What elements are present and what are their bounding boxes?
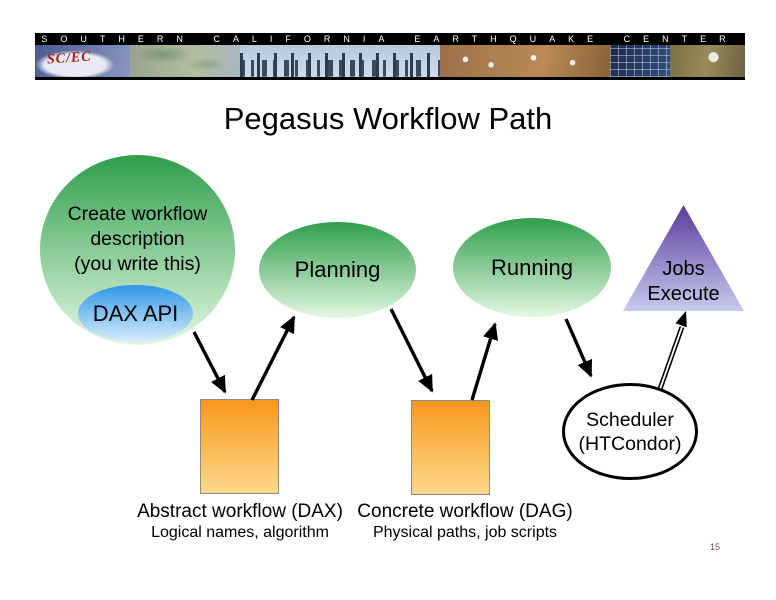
node-abstract-workflow-box [200,399,279,494]
caption-concrete-workflow: Concrete workflow (DAG) Physical paths, … [343,500,587,543]
banner-title-bar: SOUTHERN CALIFORNIA EARTHQUAKE CENTER [35,33,745,45]
banner-bottom-rule [35,77,745,80]
node-jobs-execute: Jobs Execute [623,205,744,311]
arrow-running-to-scheduler [566,319,591,376]
caption-concrete-line1: Concrete workflow (DAG) [343,500,587,523]
node-create-workflow-label: Create workflow description (you write t… [68,155,208,277]
node-planning: Planning [259,222,416,318]
arrow-daxapi-to-abstract-box [194,332,225,392]
caption-abstract-line1: Abstract workflow (DAX) [118,500,362,523]
arrow-scheduler-to-jobs-execute [658,311,686,390]
banner-photo-city-skyline [240,45,440,77]
page-title: Pegasus Workflow Path [0,101,776,137]
node-jobs-execute-label: Jobs Execute [647,257,719,311]
slide: SOUTHERN CALIFORNIA EARTHQUAKE CENTER SC… [0,0,776,600]
banner-photo-strip: SC/EC [35,45,745,77]
caption-abstract-line2: Logical names, algorithm [118,523,362,543]
scec-logo-text: SC/EC [46,49,92,68]
arrow-concrete-box-to-running [472,324,495,400]
node-running-label: Running [491,255,573,281]
node-concrete-workflow-box [411,400,490,495]
caption-concrete-line2: Physical paths, job scripts [343,523,587,543]
node-scheduler: Scheduler (HTCondor) [562,383,698,480]
scec-banner: SOUTHERN CALIFORNIA EARTHQUAKE CENTER SC… [35,33,745,80]
node-dax-api: DAX API [78,285,193,342]
banner-photo-coastline [130,45,240,77]
scec-logo: SC/EC [35,45,130,77]
banner-photo-gps-antenna [670,45,745,77]
node-dax-api-label: DAX API [93,301,179,327]
caption-abstract-workflow: Abstract workflow (DAX) Logical names, a… [118,500,362,543]
arrow-abstract-box-to-planning [252,317,294,400]
node-scheduler-label: Scheduler (HTCondor) [579,408,682,456]
arrow-planning-to-concrete-box [391,309,432,391]
banner-photo-solar-panel [610,45,670,77]
node-planning-label: Planning [295,257,381,283]
banner-photo-field-crew [440,45,610,77]
banner-title-text: SOUTHERN CALIFORNIA EARTHQUAKE CENTER [41,34,738,44]
page-number: 15 [700,542,730,552]
node-running: Running [453,218,611,317]
